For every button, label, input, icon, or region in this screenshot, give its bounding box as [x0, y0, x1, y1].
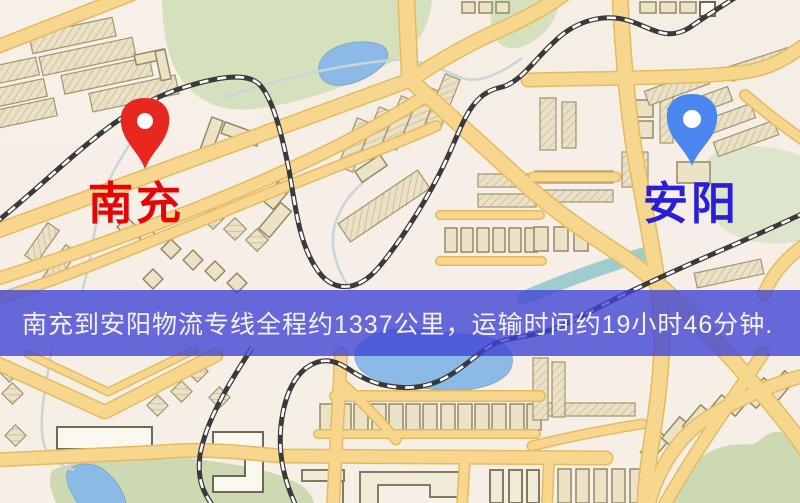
route-info-text: 南充到安阳物流专线全程约1337公里，运输时间约19小时46分钟. [22, 305, 773, 341]
map-canvas [0, 0, 800, 503]
map-screenshot: 南充 安阳 南充到安阳物流专线全程约1337公里，运输时间约19小时46分钟. [0, 0, 800, 503]
route-info-banner: 南充到安阳物流专线全程约1337公里，运输时间约19小时46分钟. [0, 290, 800, 356]
destination-city-label: 安阳 [643, 181, 739, 226]
origin-city-label: 南充 [88, 181, 184, 226]
